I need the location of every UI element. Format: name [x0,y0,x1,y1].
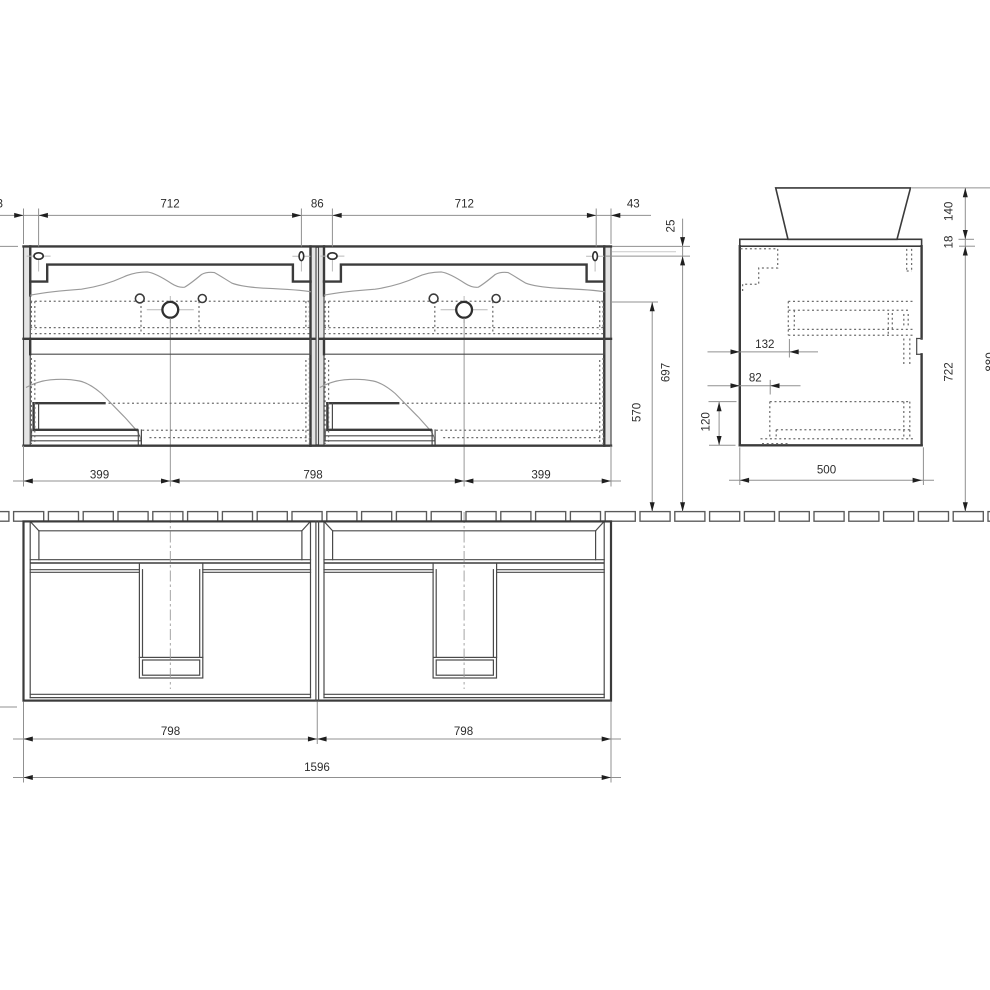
svg-text:712: 712 [455,197,474,210]
svg-text:798: 798 [303,468,322,481]
svg-text:697: 697 [660,363,673,382]
svg-text:120: 120 [700,412,713,431]
svg-text:722: 722 [943,362,956,381]
svg-text:82: 82 [749,372,762,385]
svg-text:399: 399 [90,468,109,481]
svg-text:18: 18 [943,236,956,249]
svg-text:140: 140 [943,202,956,221]
svg-text:1596: 1596 [304,761,330,774]
svg-text:798: 798 [454,725,473,738]
svg-text:43: 43 [627,198,640,211]
svg-text:712: 712 [160,197,179,210]
svg-text:500: 500 [817,464,836,477]
svg-text:132: 132 [755,338,774,351]
svg-text:570: 570 [631,403,644,422]
svg-text:43: 43 [0,198,3,211]
svg-text:25: 25 [664,220,677,233]
svg-text:798: 798 [161,725,180,738]
svg-text:880: 880 [984,352,990,371]
svg-text:86: 86 [311,198,324,211]
svg-text:399: 399 [531,468,550,481]
